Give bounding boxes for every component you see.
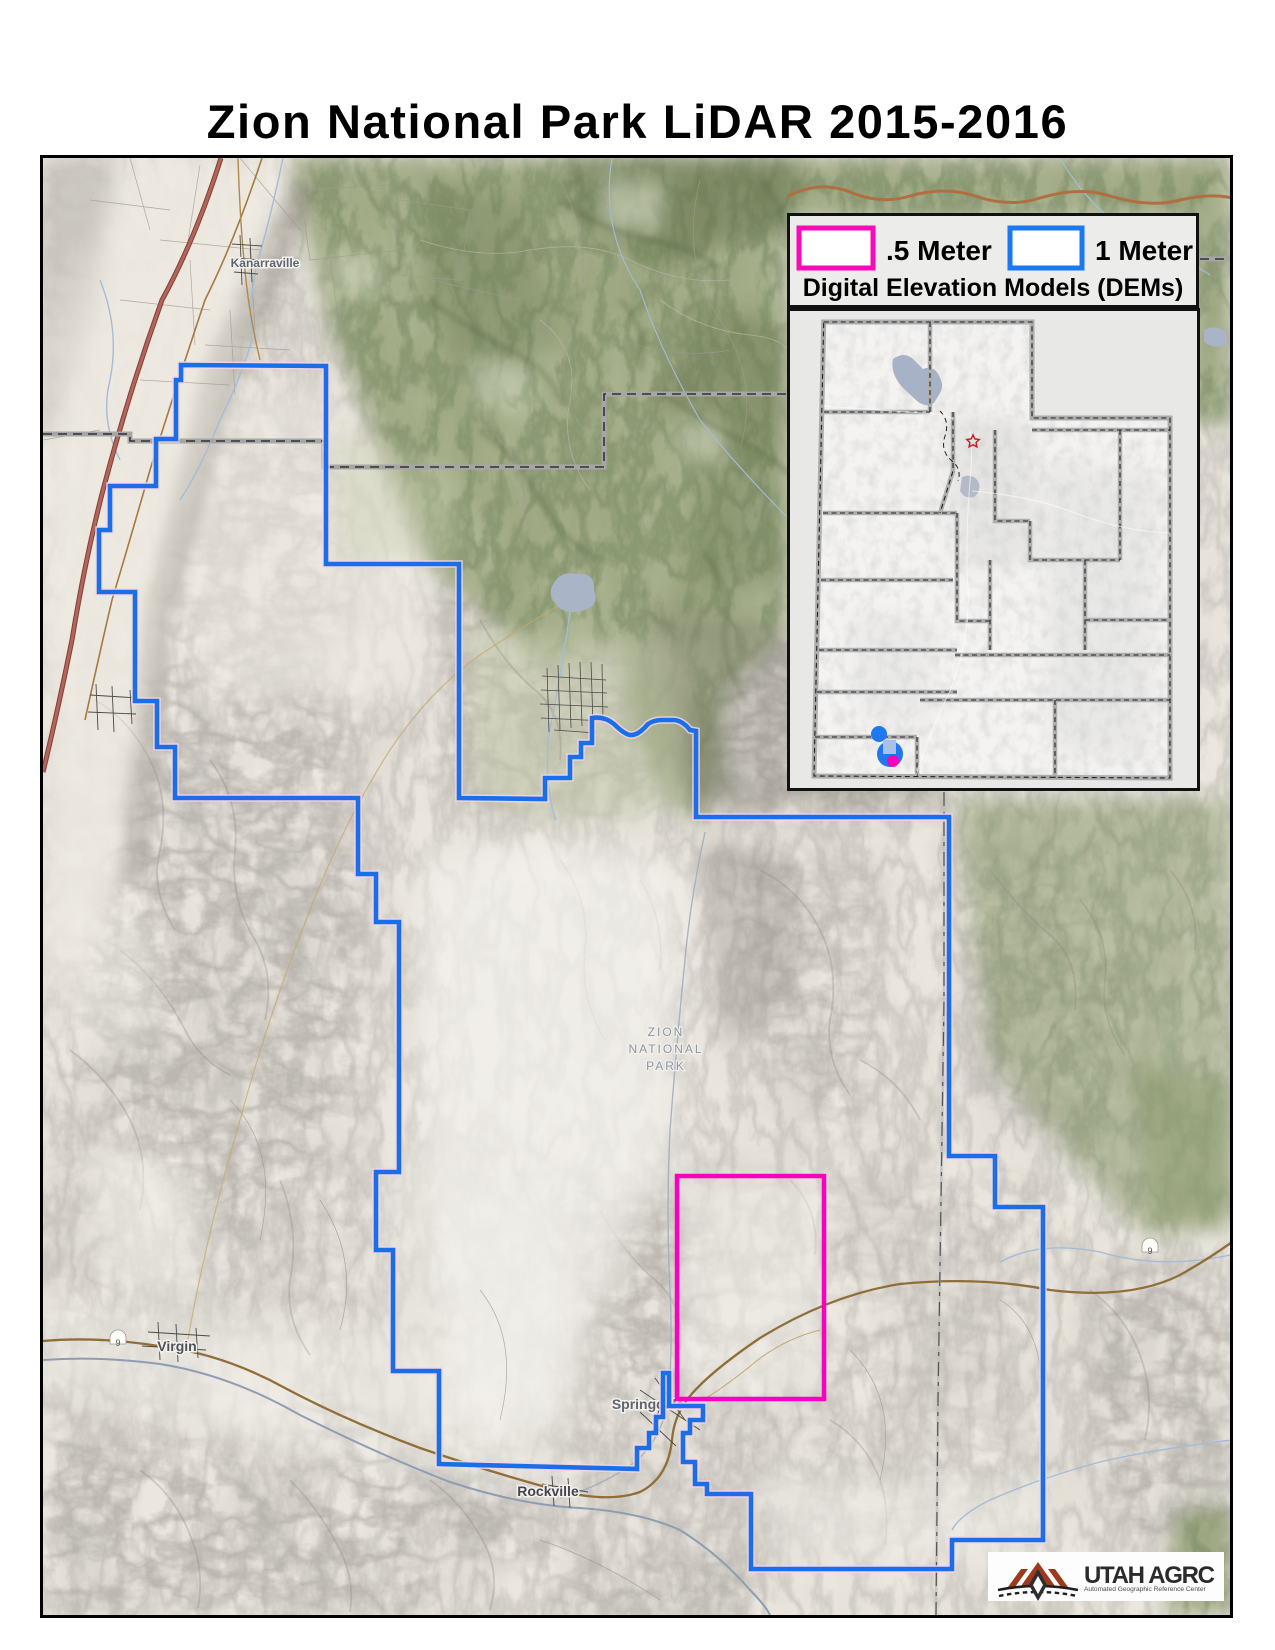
svg-text:Rockville: Rockville [517,1483,579,1499]
svg-text:NATIONAL: NATIONAL [628,1042,703,1056]
svg-text:.5 Meter: .5 Meter [886,235,992,266]
svg-text:UTAH AGRC: UTAH AGRC [1084,1562,1215,1589]
svg-text:Automated Geographic Reference: Automated Geographic Reference Center [1084,1586,1206,1593]
svg-text:9: 9 [1147,1246,1152,1256]
svg-text:Kanarraville: Kanarraville [231,256,300,270]
svg-text:Digital Elevation Models (DEMs: Digital Elevation Models (DEMs) [803,274,1184,302]
svg-text:1 Meter: 1 Meter [1095,235,1193,266]
svg-text:9: 9 [115,1338,120,1348]
svg-text:Virgin: Virgin [157,1338,196,1354]
svg-text:ZION: ZION [648,1025,685,1039]
svg-text:PARK: PARK [646,1059,686,1073]
